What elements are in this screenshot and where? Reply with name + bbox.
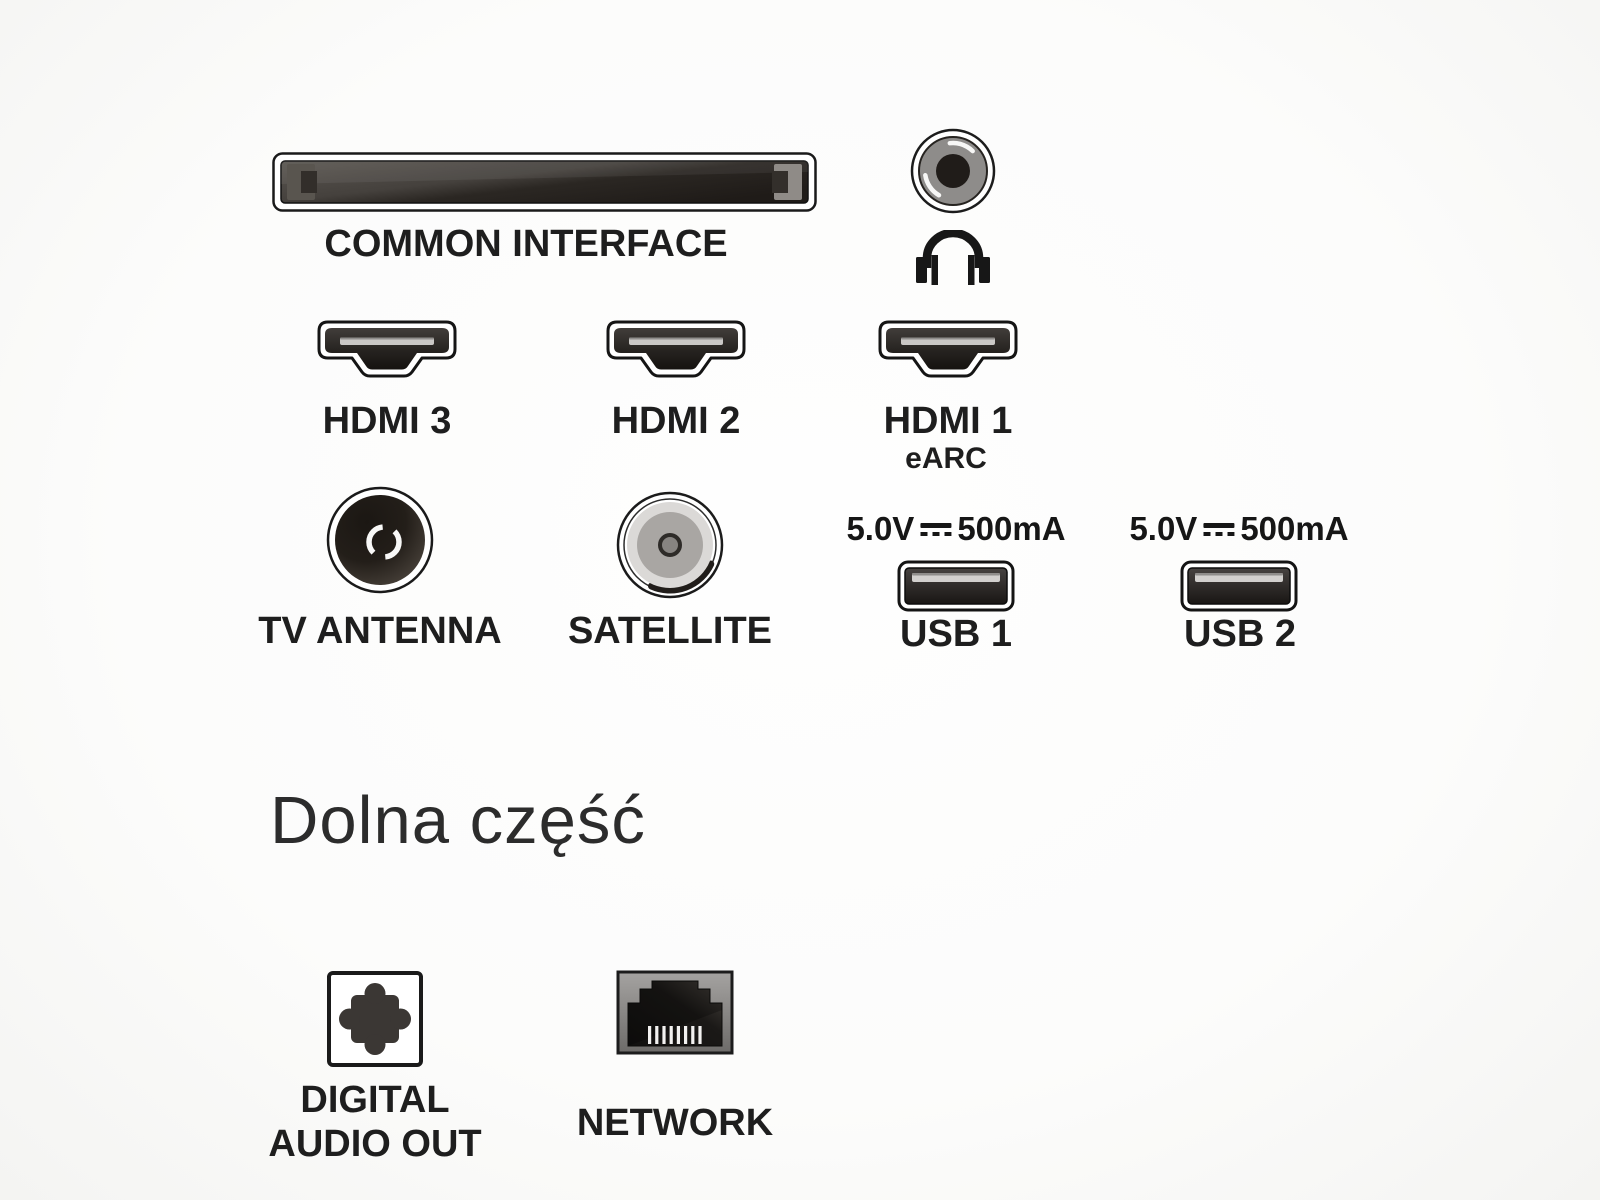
headphones-icon [913,230,993,286]
hdmi3-port-icon [317,320,457,382]
digital-audio-out-label-line2: AUDIO OUT [268,1125,481,1163]
network-label: NETWORK [577,1104,773,1142]
hdmi1-label: HDMI 1 [884,402,1013,440]
hdmi2-port-icon [606,320,746,382]
dc-voltage-icon [920,521,951,536]
common-interface-label: COMMON INTERFACE [324,225,727,263]
tv-antenna-port-icon [325,485,435,595]
usb2-port-icon [1180,560,1298,612]
bottom-section-heading: Dolna część [270,784,646,858]
hdmi2-label: HDMI 2 [612,402,741,440]
hdmi3-label: HDMI 3 [323,402,452,440]
headphone-jack-icon [909,127,997,215]
usb1-current: 500mA [957,512,1065,545]
hdmi1-earc-label: eARC [905,444,987,474]
hdmi1-port-icon [878,320,1018,382]
usb2-rating: 5.0V 500mA [1129,512,1348,545]
usb2-current: 500mA [1240,512,1348,545]
digital-audio-out-port-icon [326,970,424,1068]
common-interface-slot-icon [272,152,817,212]
usb1-port-icon [897,560,1015,612]
digital-audio-out-label-line1: DIGITAL [300,1081,449,1119]
usb1-label: USB 1 [900,615,1012,653]
satellite-label: SATELLITE [568,612,772,650]
dc-voltage-icon [1203,521,1234,536]
tv-antenna-label: TV ANTENNA [258,612,501,650]
usb2-voltage: 5.0V [1129,512,1197,545]
network-port-icon [616,970,734,1055]
tv-connections-diagram: COMMON INTERFACE HDMI 3 HDMI 2 HDMI 1 eA… [0,0,1600,1200]
satellite-port-icon [615,490,725,600]
usb1-rating: 5.0V 500mA [846,512,1065,545]
usb1-voltage: 5.0V [846,512,914,545]
usb2-label: USB 2 [1184,615,1296,653]
